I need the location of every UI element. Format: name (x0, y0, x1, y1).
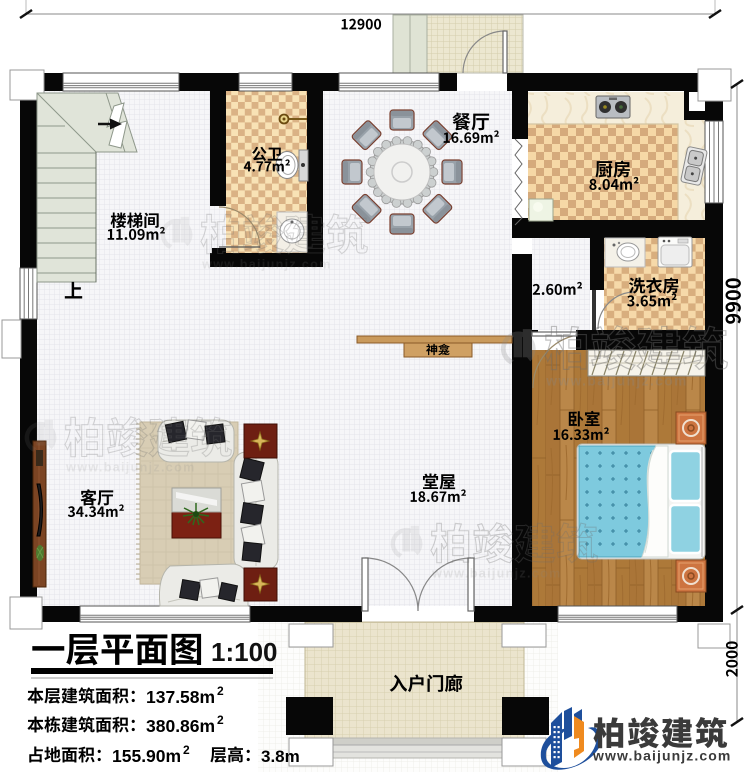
svg-text:www.baijunjz.com: www.baijunjz.com (201, 257, 332, 271)
svg-text:155.90m: 155.90m (112, 746, 181, 766)
svg-text:380.86m: 380.86m (146, 716, 215, 736)
svg-text:www.baijunjz.com: www.baijunjz.com (65, 460, 196, 474)
svg-text:2: 2 (217, 684, 224, 698)
svg-text:www.baijunjz.com: www.baijunjz.com (592, 748, 731, 764)
svg-text:www.baijunjz.com: www.baijunjz.com (431, 566, 561, 580)
svg-text:2: 2 (183, 743, 190, 757)
svg-text:3.8m: 3.8m (261, 747, 300, 766)
svg-text:www.baijunjz.com: www.baijunjz.com (545, 374, 687, 389)
svg-text:1:100: 1:100 (211, 637, 278, 667)
svg-text:2: 2 (217, 713, 224, 727)
svg-text:137.58m: 137.58m (146, 687, 215, 707)
